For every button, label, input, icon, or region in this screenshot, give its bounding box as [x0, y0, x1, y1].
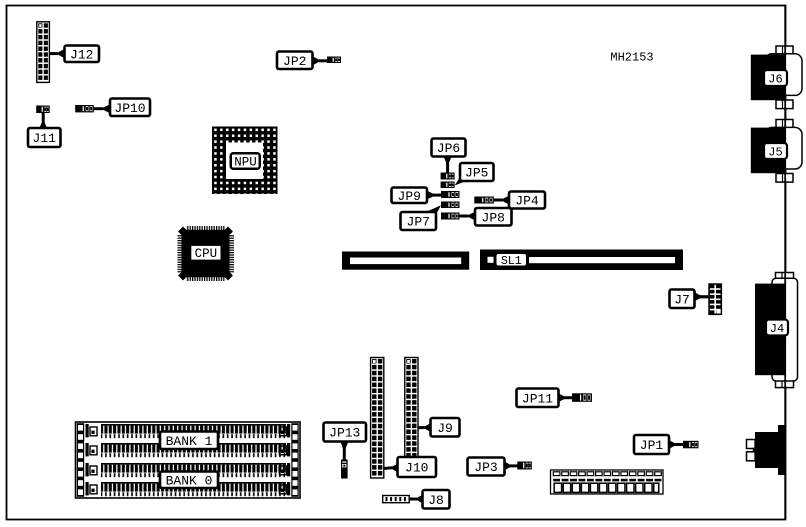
svg-text:MH2153: MH2153	[610, 51, 653, 65]
svg-text:NPU: NPU	[234, 156, 257, 170]
svg-text:J6: J6	[768, 72, 782, 86]
svg-text:JP11: JP11	[522, 391, 553, 406]
svg-text:J11: J11	[33, 131, 57, 146]
svg-text:JP9: JP9	[398, 189, 421, 204]
svg-text:JP10: JP10	[114, 101, 145, 116]
svg-text:JP7: JP7	[407, 215, 430, 230]
svg-text:JP6: JP6	[437, 141, 460, 156]
svg-text:J8: J8	[428, 493, 444, 508]
svg-text:J10: J10	[405, 461, 428, 476]
svg-text:JP4: JP4	[515, 194, 539, 209]
svg-text:JP8: JP8	[482, 210, 505, 225]
svg-text:J5: J5	[768, 145, 782, 159]
svg-text:CPU: CPU	[195, 247, 218, 261]
svg-text:J9: J9	[437, 421, 453, 436]
svg-text:J4: J4	[770, 322, 784, 336]
svg-text:JP2: JP2	[283, 54, 306, 69]
svg-text:SL1: SL1	[501, 255, 522, 268]
svg-text:JP1: JP1	[640, 438, 664, 453]
svg-text:BANK 1: BANK 1	[166, 434, 213, 449]
svg-text:JP3: JP3	[474, 460, 497, 475]
svg-text:BANK 0: BANK 0	[166, 473, 213, 488]
svg-text:J12: J12	[70, 47, 93, 62]
svg-text:J7: J7	[674, 292, 690, 307]
svg-text:JP5: JP5	[465, 166, 488, 181]
svg-text:JP13: JP13	[329, 426, 360, 441]
